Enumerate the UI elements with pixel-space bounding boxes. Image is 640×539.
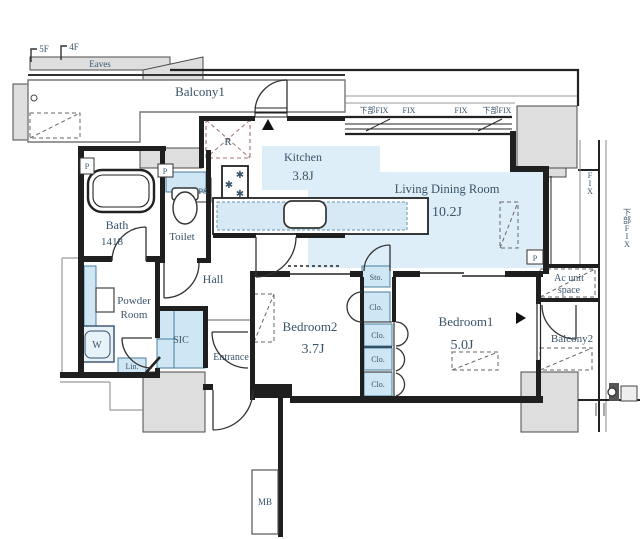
balcony1-label: Balcony1	[175, 84, 225, 99]
closet-row-doors[interactable]	[396, 322, 408, 396]
fix-lower-label-east: 下部FIX	[623, 208, 631, 249]
pipe-box	[621, 386, 637, 401]
kitchen-label: Kitchen	[284, 150, 322, 164]
washer-label: W	[92, 340, 102, 351]
porch-block	[143, 372, 205, 432]
closet-label-3: Clo.	[371, 355, 385, 364]
fix-label-2: FIX	[403, 106, 416, 115]
bedroom1-label: Bedroom1	[439, 314, 494, 329]
bedroom1-window	[537, 304, 541, 360]
pipe-label-3: P	[533, 254, 538, 263]
fix-label-east: FIX	[587, 171, 593, 196]
toilet-label: Toilet	[169, 231, 195, 243]
fix-label-1: 下部FIX	[360, 105, 389, 115]
powder-label-1: Powder	[117, 295, 151, 307]
floor-upper-label: 5F	[39, 44, 49, 54]
northeast-pillar-stub	[548, 168, 566, 177]
east-service-lines	[580, 140, 606, 432]
triangle-right-icon	[516, 312, 526, 324]
closet-label-1: Clo.	[369, 303, 383, 312]
bedroom1-sliding-door[interactable]	[420, 273, 505, 276]
living-size-label: 10.2J	[432, 205, 463, 220]
closet-label-4: Clo.	[371, 380, 385, 389]
living-label: Living Dining Room	[395, 182, 500, 196]
west-pillar	[13, 84, 28, 140]
vanity-counter	[84, 266, 96, 328]
balcony2-label: Balcony2	[551, 333, 593, 345]
floor-lower-label: 4F	[69, 42, 79, 52]
northeast-pillar	[517, 106, 577, 168]
bedroom2-label: Bedroom2	[283, 319, 338, 334]
meter-box-label: MB	[258, 497, 272, 507]
balcony2-hatch-diagonal	[540, 348, 592, 370]
entrance-label: Entrance	[213, 352, 249, 363]
linen-label: Lin.	[125, 362, 138, 371]
kitchen-size-label: 3.8J	[292, 168, 313, 183]
burner-icon: ✱	[236, 170, 244, 181]
entrance-door[interactable]	[213, 390, 253, 430]
balcony-door-sill2	[255, 113, 287, 117]
fix-window-band	[345, 117, 512, 134]
floor-plan-canvas: 5F 4F Eaves Balcony1 下部FIX FIX FIX 下部FIX…	[0, 0, 640, 539]
toilet-door[interactable]	[164, 263, 199, 298]
eaves-label: Eaves	[89, 59, 111, 69]
powder-label-2: Room	[121, 309, 148, 321]
pip-shaft-label: PS	[199, 187, 208, 196]
sic-label: SIC	[173, 335, 189, 346]
triangle-up-icon	[262, 119, 274, 130]
hall-label: Hall	[203, 272, 224, 286]
bedroom2-size-label: 3.7J	[302, 342, 326, 357]
drain-icon	[608, 388, 616, 396]
storage-label: Sto.	[370, 273, 383, 282]
wash-basin	[96, 288, 114, 312]
burner-icon: ✱	[225, 180, 233, 191]
balcony-drain-icon	[31, 95, 37, 101]
sink	[284, 201, 326, 228]
burner-icon: ✱	[236, 189, 244, 200]
ac-space-label-1: Ac unit	[554, 273, 584, 284]
ac-space-label-2: space	[558, 285, 581, 296]
pipe-label-2: P	[163, 167, 168, 176]
closet-large-doors[interactable]	[347, 292, 362, 322]
toilet-bowl	[173, 192, 197, 224]
bath-size-label: 1418	[101, 236, 124, 248]
refrigerator-label: R	[224, 136, 232, 148]
balcony-door-sill	[255, 108, 287, 112]
floor-plan: 5F 4F Eaves Balcony1 下部FIX FIX FIX 下部FIX…	[0, 0, 640, 539]
fix-label-4: 下部FIX	[483, 105, 512, 115]
fix-label-3: FIX	[455, 106, 468, 115]
pipe-label-1: P	[85, 162, 90, 171]
bedroom2-hatch-diagonal	[254, 294, 274, 342]
closet-label-2: Clo.	[371, 331, 385, 340]
bedroom1-size-label: 5.0J	[451, 338, 475, 353]
bath-label: Bath	[106, 218, 129, 232]
bedroom1-hatch-diagonal	[452, 352, 498, 370]
